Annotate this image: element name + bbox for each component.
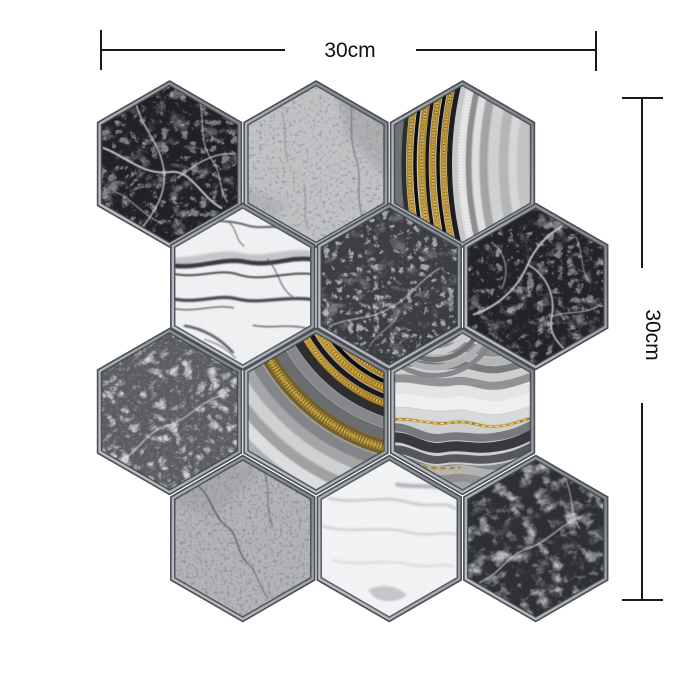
svg-text:30cm: 30cm (641, 309, 664, 360)
svg-text:30cm: 30cm (324, 39, 375, 62)
